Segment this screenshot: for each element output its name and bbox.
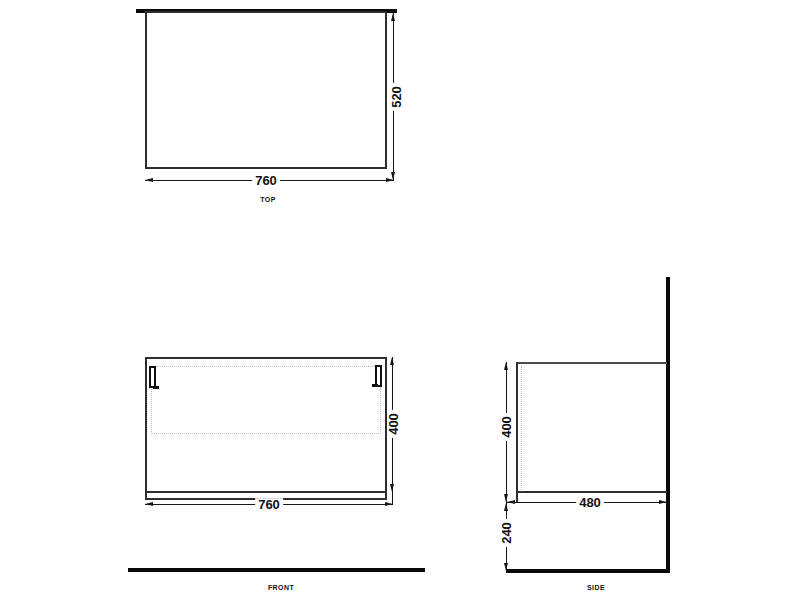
side-view-cabinet-bottom-line (517, 491, 667, 493)
side-view-door-inset-dashed (521, 366, 522, 490)
left-door-handle-foot (153, 386, 159, 389)
dim-arrow-right-icon (385, 502, 393, 506)
top-view-depth-dimension: 520 (390, 83, 404, 111)
front-view-label: FRONT (268, 584, 294, 591)
dim-arrow-up-icon (391, 13, 395, 21)
side-view-floor-offset-dimension: 240 (500, 519, 514, 547)
top-view-width-dimension: 760 (252, 174, 280, 188)
dim-arrow-right-icon (386, 178, 394, 182)
top-view-label: TOP (260, 196, 275, 203)
side-view-floor-line (506, 569, 670, 573)
dim-arrow-left-icon (145, 502, 153, 506)
technical-drawing-canvas: 760 520 TOP 400 760 FRONT (0, 0, 800, 600)
dim-arrow-left-icon (145, 178, 153, 182)
right-door-handle-foot (372, 384, 378, 387)
side-view-cabinet-front-line (516, 362, 518, 503)
dim-arrow-right-icon (659, 500, 667, 504)
dim-arrow-up-icon (390, 357, 394, 365)
top-view-cabinet-outline (145, 11, 387, 169)
side-view-cabinet-top-line (517, 362, 667, 364)
dim-arrow-left-icon (507, 500, 515, 504)
dim-arrow-down-icon (390, 484, 394, 492)
side-view-height-dimension: 400 (500, 413, 514, 441)
front-view-floor-line (128, 568, 425, 572)
side-view-wall-line (666, 277, 670, 573)
left-door-handle (149, 366, 156, 388)
side-view-label: SIDE (587, 584, 605, 591)
front-view-door-inset-dashed (151, 366, 381, 434)
dim-arrow-up-icon (504, 503, 508, 511)
front-view-width-dimension: 760 (255, 498, 283, 512)
front-view-height-dimension: 400 (387, 410, 401, 438)
front-view-bottom-panel-line (147, 491, 385, 493)
dim-arrow-up-icon (504, 362, 508, 370)
dim-arrow-down-icon (504, 563, 508, 571)
side-view-depth-dimension: 480 (576, 496, 604, 510)
